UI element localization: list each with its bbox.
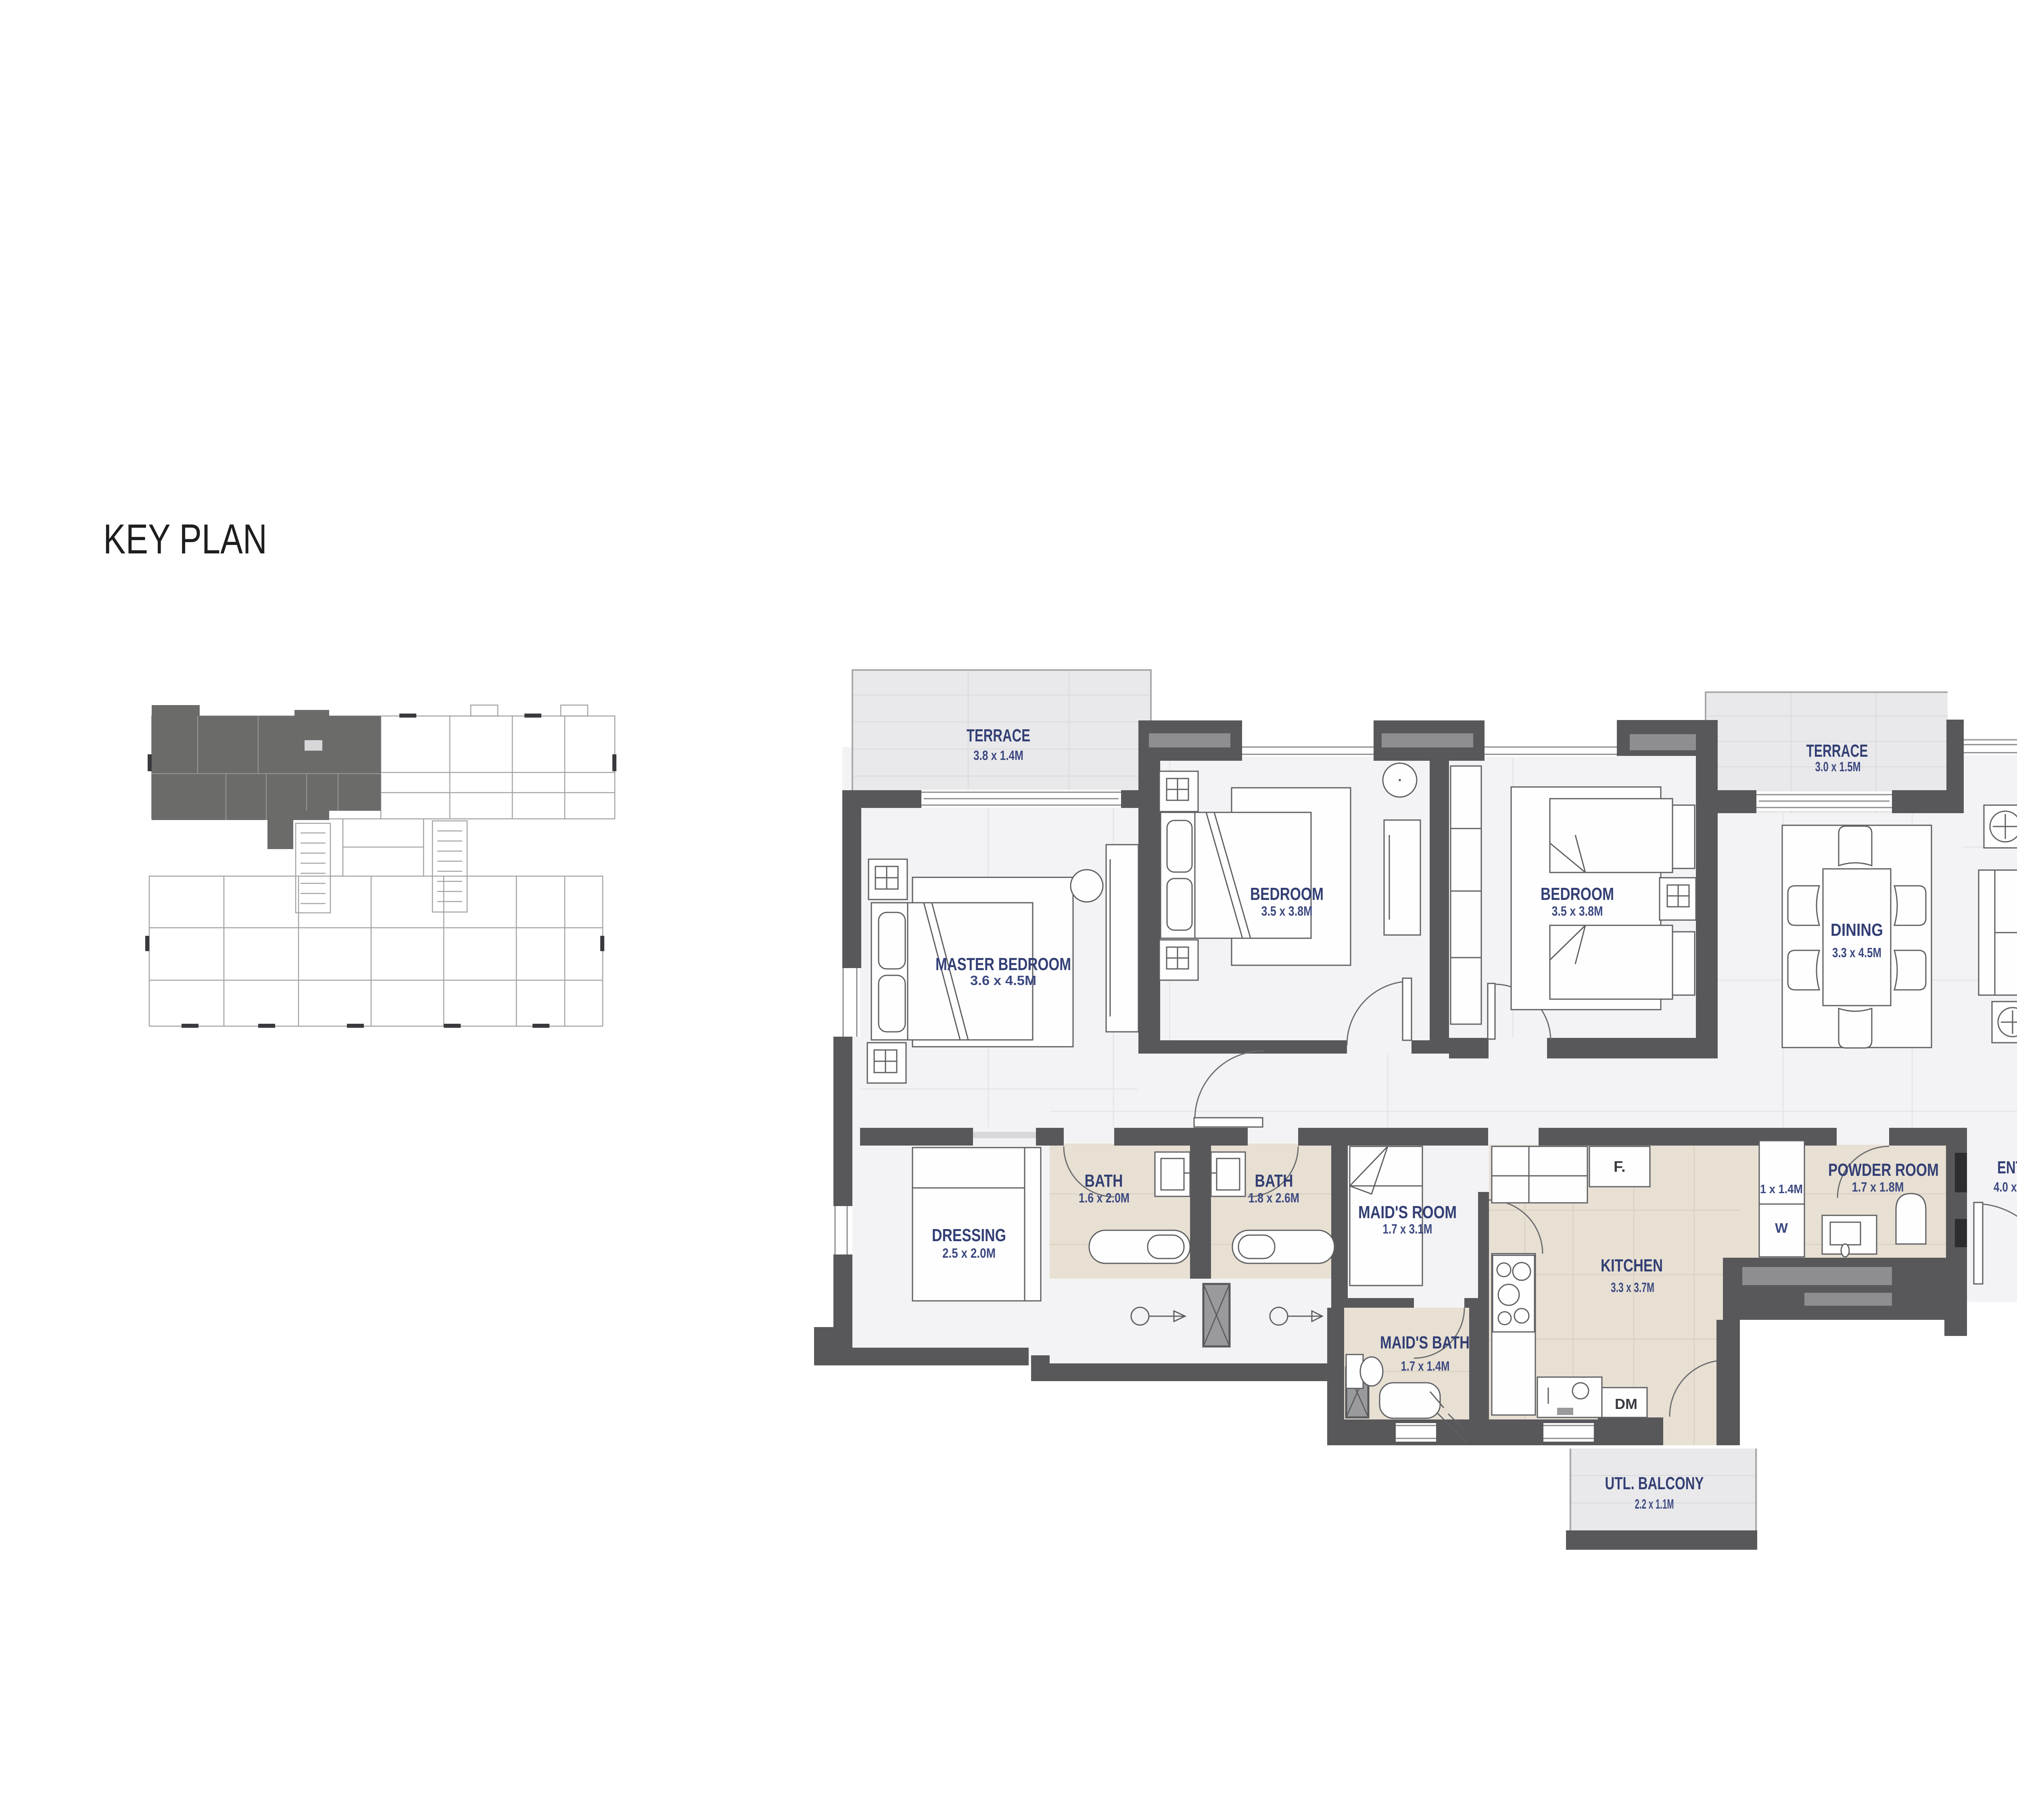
svg-text:4.0 x 2.0M: 4.0 x 2.0M xyxy=(1994,1179,2017,1194)
svg-text:3.6 x 4.5M: 3.6 x 4.5M xyxy=(970,973,1036,988)
svg-text:1.8 x 2.6M: 1.8 x 2.6M xyxy=(1249,1190,1299,1205)
svg-text:3.3 x 3.7M: 3.3 x 3.7M xyxy=(1611,1280,1654,1295)
svg-text:DRESSING: DRESSING xyxy=(932,1225,1006,1245)
svg-text:3.5 x 3.8M: 3.5 x 3.8M xyxy=(1552,904,1603,918)
svg-text:KITCHEN: KITCHEN xyxy=(1601,1256,1663,1275)
svg-text:3.0 x 1.5M: 3.0 x 1.5M xyxy=(1815,759,1861,774)
svg-text:F.: F. xyxy=(1614,1158,1626,1175)
svg-text:BEDROOM: BEDROOM xyxy=(1541,884,1614,904)
svg-text:UTL. BALCONY: UTL. BALCONY xyxy=(1605,1474,1704,1493)
svg-text:MAID'S ROOM: MAID'S ROOM xyxy=(1358,1202,1457,1222)
svg-text:2.5 x 2.0M: 2.5 x 2.0M xyxy=(942,1246,996,1261)
svg-text:3.5 x 3.8M: 3.5 x 3.8M xyxy=(1261,904,1313,918)
svg-text:BATH: BATH xyxy=(1085,1171,1123,1191)
svg-text:TERRACE: TERRACE xyxy=(967,726,1030,745)
svg-text:BEDROOM: BEDROOM xyxy=(1250,884,1324,904)
svg-text:TERRACE: TERRACE xyxy=(1806,741,1868,761)
svg-text:1 x 1.4M: 1 x 1.4M xyxy=(1760,1182,1803,1196)
svg-text:MASTER BEDROOM: MASTER BEDROOM xyxy=(935,954,1071,974)
svg-text:1.7 x 1.8M: 1.7 x 1.8M xyxy=(1852,1179,1904,1194)
svg-text:3.8 x 1.4M: 3.8 x 1.4M xyxy=(973,748,1023,763)
svg-text:DM: DM xyxy=(1615,1396,1637,1412)
svg-text:3.3 x 4.5M: 3.3 x 4.5M xyxy=(1832,945,1881,960)
svg-text:1.7 x 1.4M: 1.7 x 1.4M xyxy=(1401,1359,1450,1373)
svg-text:ENTRY: ENTRY xyxy=(1997,1158,2017,1177)
svg-text:DINING: DINING xyxy=(1831,920,1883,940)
svg-text:POWDER ROOM: POWDER ROOM xyxy=(1828,1160,1939,1180)
svg-text:2.2 x 1.1M: 2.2 x 1.1M xyxy=(1635,1496,1674,1511)
svg-text:BATH: BATH xyxy=(1255,1171,1293,1191)
svg-text:MAID'S BATH: MAID'S BATH xyxy=(1380,1333,1470,1352)
svg-text:W: W xyxy=(1775,1221,1788,1236)
svg-text:1.6 x 2.0M: 1.6 x 2.0M xyxy=(1079,1190,1130,1205)
svg-text:1.7 x 3.1M: 1.7 x 3.1M xyxy=(1383,1221,1432,1236)
svg-text:KEY PLAN: KEY PLAN xyxy=(103,516,267,563)
